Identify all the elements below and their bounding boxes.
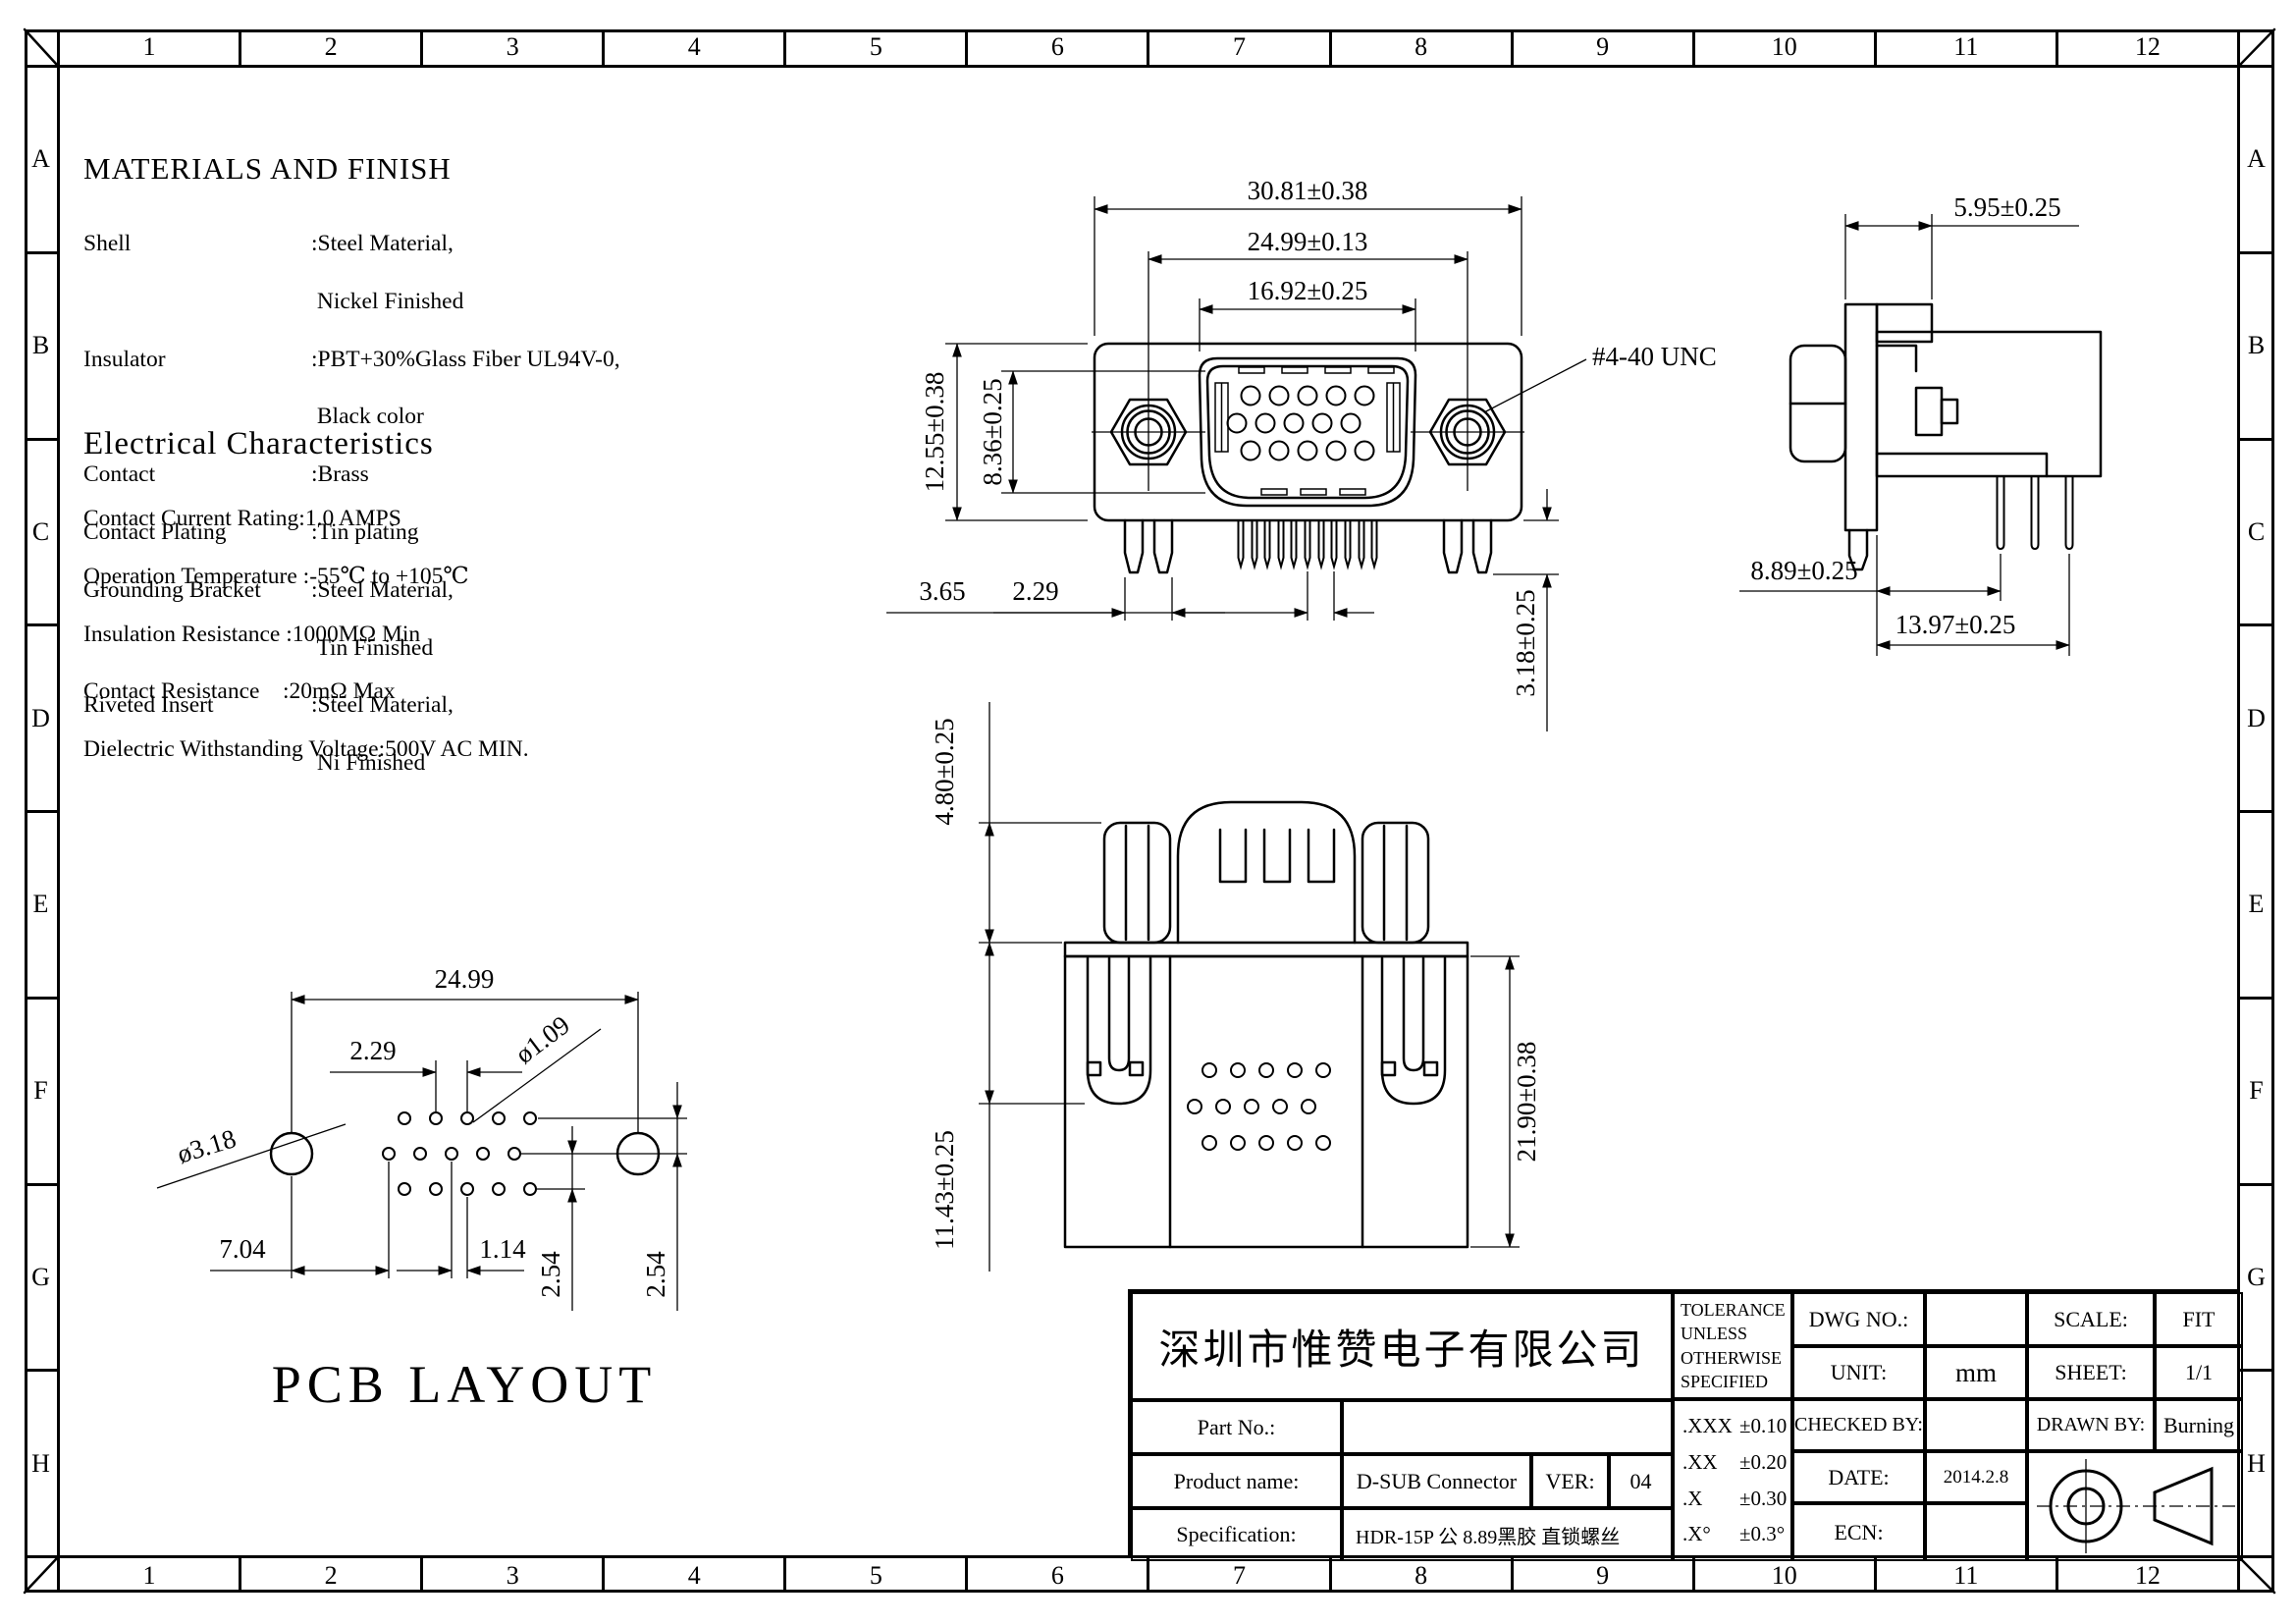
grid-row-f: F [25,1000,57,1186]
drawn-value: Burning [2163,1413,2234,1438]
titleblock-projection-symbol [2027,1451,2243,1561]
titleblock-scale-value: FIT [2155,1292,2243,1346]
material-value: Nickel Finished [311,291,463,313]
unit-value: mm [1955,1358,1997,1388]
spec-value: HDR-15P 公 8.89黑胶 直锁螺丝 [1356,1521,1620,1549]
titleblock-company: 深圳市惟赞电子有限公司 [1131,1292,1673,1400]
ecn-label: ECN: [1834,1520,1883,1545]
electrical-section: Electrical Characteristics Contact Curre… [83,391,529,796]
grid-col-9: 9 [1514,1558,1695,1593]
grid-row-h: H [2240,1372,2272,1555]
titleblock-product-value: D-SUB Connector [1342,1454,1531,1508]
date-value: 2014.2.8 [1944,1467,2009,1489]
tolerance-header-line: OTHERWISE [1681,1346,1782,1370]
grid-col-10: 10 [1695,1558,1877,1593]
grid-col-7: 7 [1149,1558,1331,1593]
ver-value: 04 [1630,1469,1652,1494]
materials-title: MATERIALS AND FINISH [83,151,620,187]
scale-label: SCALE: [2054,1307,2128,1332]
date-label: DATE: [1828,1465,1889,1490]
grid-col-12: 12 [2058,1558,2237,1593]
grid-strip-bottom: 1 2 3 4 5 6 7 8 9 10 11 12 [57,1558,2240,1593]
third-angle-projection-icon [2029,1453,2241,1559]
title-block: 深圳市惟赞电子有限公司 Part No.: Product name: D-SU… [1128,1289,2240,1558]
titleblock-checked-value [1925,1399,2027,1451]
partno-label: Part No.: [1198,1415,1275,1440]
titleblock-sheet-label: SHEET: [2027,1346,2155,1399]
tolerance-key: .X [1682,1481,1739,1517]
electrical-line: Contact Current Rating:1.0 AMPS [83,508,529,530]
material-label [83,291,311,313]
material-row: Nickel Finished [83,291,620,313]
tolerance-header-line: TOLERANCE [1681,1298,1786,1322]
grid-col-5: 5 [786,29,968,65]
drawing-sheet: 1 2 3 4 5 6 7 8 9 10 11 12 1 2 3 4 5 6 7… [0,0,2296,1624]
material-value: :Steel Material, [311,233,454,255]
product-label: Product name: [1174,1469,1300,1494]
titleblock-spec-label: Specification: [1131,1508,1342,1561]
grid-row-a: A [2240,68,2272,254]
titleblock-tolerance-header: TOLERANCE UNLESS OTHERWISE SPECIFIED [1673,1292,1792,1399]
grid-strip-top: 1 2 3 4 5 6 7 8 9 10 11 12 [57,29,2240,65]
titleblock-scale-label: SCALE: [2027,1292,2155,1346]
titleblock-date-label: DATE: [1792,1451,1925,1503]
company-name: 深圳市惟赞电子有限公司 [1158,1317,1644,1377]
grid-col-1: 1 [60,1558,241,1593]
tolerance-row: .XXX±0.10 [1682,1408,1787,1444]
product-value: D-SUB Connector [1357,1469,1517,1494]
electrical-line: Dielectric Withstanding Voltage:500V AC … [83,738,529,761]
grid-col-5: 5 [786,1558,968,1593]
titleblock-tolerance-values: .XXX±0.10 .XX±0.20 .X±0.30 .X°±0.3° [1673,1399,1792,1561]
titleblock-product-label: Product name: [1131,1454,1342,1508]
material-row: Insulator:PBT+30%Glass Fiber UL94V-0, [83,349,620,371]
grid-col-10: 10 [1695,29,1877,65]
grid-col-2: 2 [241,29,423,65]
titleblock-checked-label: CHECKED BY: [1792,1399,1925,1451]
grid-col-9: 9 [1514,29,1695,65]
titleblock-sheet-value: 1/1 [2155,1346,2243,1399]
material-label: Insulator [83,349,311,371]
grid-col-8: 8 [1332,29,1514,65]
electrical-line: Contact Resistance :20mΩ Max [83,680,529,703]
tolerance-key: .XX [1682,1444,1739,1481]
grid-col-4: 4 [605,1558,786,1593]
titleblock-dwg-value [1925,1292,2027,1346]
titleblock-dwg-label: DWG NO.: [1792,1292,1925,1346]
grid-col-3: 3 [423,1558,605,1593]
titleblock-ver-label: VER: [1531,1454,1609,1508]
grid-row-d: D [2240,626,2272,813]
tolerance-header-line: UNLESS [1681,1322,1747,1345]
grid-col-11: 11 [1877,29,2058,65]
titleblock-date-value: 2014.2.8 [1925,1451,2027,1503]
drawn-label: DRAWN BY: [2037,1414,2145,1436]
grid-row-h: H [25,1372,57,1555]
titleblock-partno-value [1342,1400,1673,1454]
titleblock-spec-value: HDR-15P 公 8.89黑胶 直锁螺丝 [1342,1508,1673,1561]
tolerance-value: ±0.10 [1739,1408,1787,1444]
grid-row-g: G [25,1186,57,1373]
grid-col-12: 12 [2058,29,2237,65]
tolerance-row: .XX±0.20 [1682,1444,1787,1481]
sheet-value: 1/1 [2185,1360,2213,1385]
unit-label: UNIT: [1831,1360,1888,1385]
titleblock-drawn-value: Burning [2155,1399,2243,1451]
material-label: Shell [83,233,311,255]
spec-label: Specification: [1176,1522,1296,1547]
tolerance-key: .XXX [1682,1408,1739,1444]
grid-row-c: C [25,441,57,627]
titleblock-partno-label: Part No.: [1131,1400,1342,1454]
tolerance-value: ±0.3° [1739,1516,1785,1552]
grid-col-2: 2 [241,1558,423,1593]
grid-col-7: 7 [1149,29,1331,65]
titleblock-ver-value: 04 [1609,1454,1673,1508]
dwg-label: DWG NO.: [1809,1307,1908,1332]
grid-strip-left: A B C D E F G H [25,65,57,1558]
grid-row-c: C [2240,441,2272,627]
tolerance-key: .X° [1682,1516,1739,1552]
scale-value: FIT [2183,1307,2216,1332]
checked-label: CHECKED BY: [1794,1414,1923,1436]
grid-strip-right: A B C D E F G H [2240,65,2272,1558]
grid-row-d: D [25,626,57,813]
grid-col-6: 6 [968,29,1149,65]
grid-row-g: G [2240,1186,2272,1373]
grid-col-8: 8 [1332,1558,1514,1593]
grid-col-1: 1 [60,29,241,65]
ver-label: VER: [1545,1469,1594,1494]
electrical-title: Electrical Characteristics [83,426,529,462]
titleblock-unit-value: mm [1925,1346,2027,1399]
grid-col-3: 3 [423,29,605,65]
titleblock-drawn-label: DRAWN BY: [2027,1399,2155,1451]
grid-row-e: E [25,813,57,1000]
grid-row-b: B [2240,254,2272,441]
titleblock-ecn-value [1925,1503,2027,1561]
grid-row-a: A [25,68,57,254]
titleblock-unit-label: UNIT: [1792,1346,1925,1399]
electrical-line: Operation Temperature :-55℃ to +105℃ [83,566,529,588]
grid-col-11: 11 [1877,1558,2058,1593]
electrical-line: Insulation Resistance :1000MΩ Min [83,623,529,646]
tolerance-row: .X°±0.3° [1682,1516,1785,1552]
tolerance-value: ±0.20 [1739,1444,1787,1481]
grid-row-f: F [2240,1000,2272,1186]
sheet-label: SHEET: [2055,1360,2126,1385]
material-value: :PBT+30%Glass Fiber UL94V-0, [311,349,620,371]
grid-col-4: 4 [605,29,786,65]
titleblock-ecn-label: ECN: [1792,1503,1925,1561]
tolerance-header-line: SPECIFIED [1681,1370,1768,1393]
material-row: Shell:Steel Material, [83,233,620,255]
tolerance-row: .X±0.30 [1682,1481,1787,1517]
grid-row-e: E [2240,813,2272,1000]
grid-row-b: B [25,254,57,441]
tolerance-value: ±0.30 [1739,1481,1787,1517]
grid-col-6: 6 [968,1558,1149,1593]
